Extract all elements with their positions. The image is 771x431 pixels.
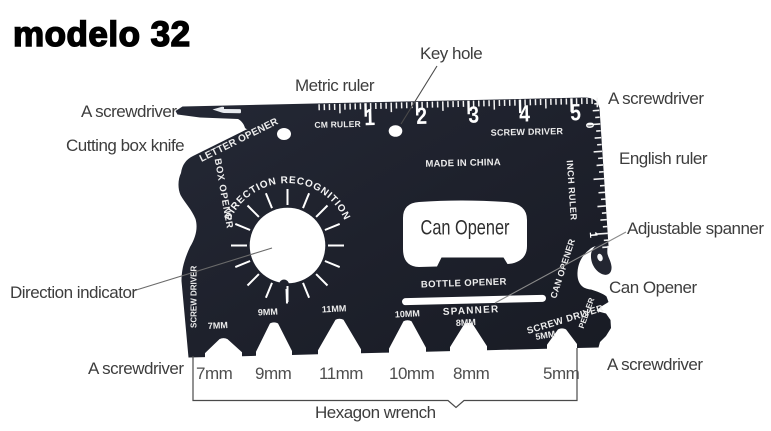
svg-text:11MM: 11MM: [322, 303, 347, 314]
svg-text:2: 2: [416, 103, 427, 129]
svg-text:MADE IN CHINA: MADE IN CHINA: [425, 157, 501, 170]
svg-text:0: 0: [583, 122, 595, 129]
svg-text:7MM: 7MM: [208, 320, 228, 331]
svg-text:SCREW DRIVER: SCREW DRIVER: [190, 266, 199, 328]
svg-text:1: 1: [364, 104, 375, 130]
svg-text:3: 3: [468, 102, 479, 128]
svg-text:4: 4: [519, 101, 530, 127]
svg-text:CM RULER: CM RULER: [314, 119, 361, 130]
svg-text:9MM: 9MM: [258, 306, 278, 317]
svg-text:8MM: 8MM: [456, 317, 476, 328]
svg-text:10MM: 10MM: [395, 308, 421, 319]
svg-text:5MM: 5MM: [535, 329, 556, 342]
svg-text:Can Opener: Can Opener: [421, 216, 510, 240]
svg-text:5: 5: [570, 99, 581, 125]
svg-text:1: 1: [587, 231, 599, 238]
svg-text:SCREW DRIVER: SCREW DRIVER: [491, 126, 564, 138]
